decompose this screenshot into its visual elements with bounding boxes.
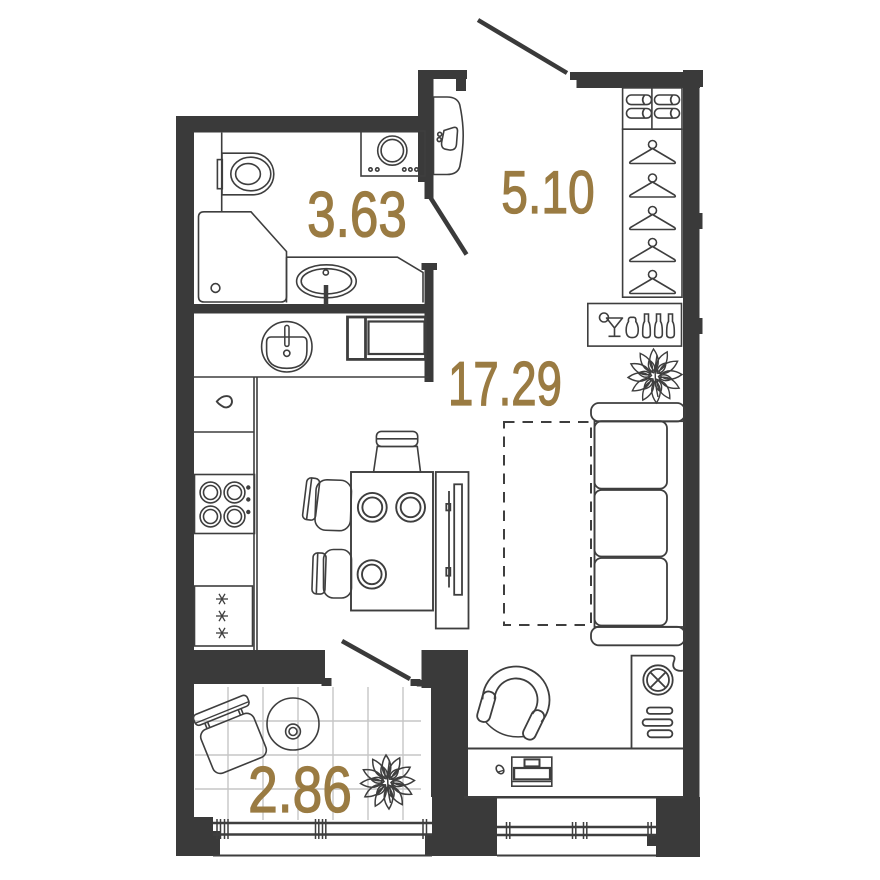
svg-text:3.63: 3.63 <box>307 180 407 251</box>
svg-text:5.10: 5.10 <box>501 159 594 226</box>
svg-text:2.86: 2.86 <box>248 753 352 826</box>
svg-text:17.29: 17.29 <box>448 349 562 419</box>
